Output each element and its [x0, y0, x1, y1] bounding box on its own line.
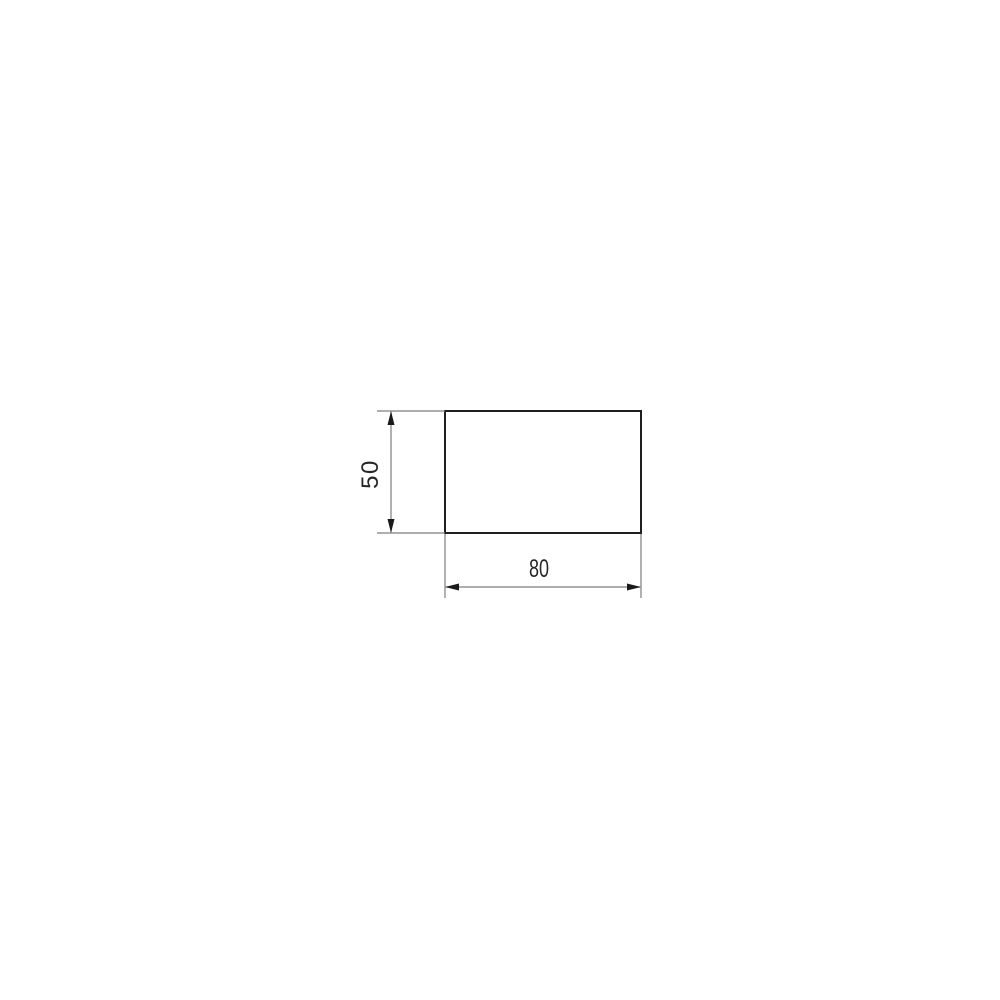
width-arrow-right — [627, 584, 641, 591]
height-dimension-label: 50 — [357, 459, 384, 489]
height-arrow-bottom — [388, 519, 395, 533]
width-dimension-label: 80 — [529, 554, 549, 583]
height-arrow-top — [388, 411, 395, 425]
width-dimension: 80 — [445, 534, 641, 598]
rectangle-outline — [445, 411, 641, 533]
technical-drawing: 50 80 — [0, 0, 1000, 1000]
width-arrow-left — [445, 584, 459, 591]
height-dimension: 50 — [357, 411, 445, 533]
drawing-canvas: 50 80 — [0, 0, 1000, 1000]
